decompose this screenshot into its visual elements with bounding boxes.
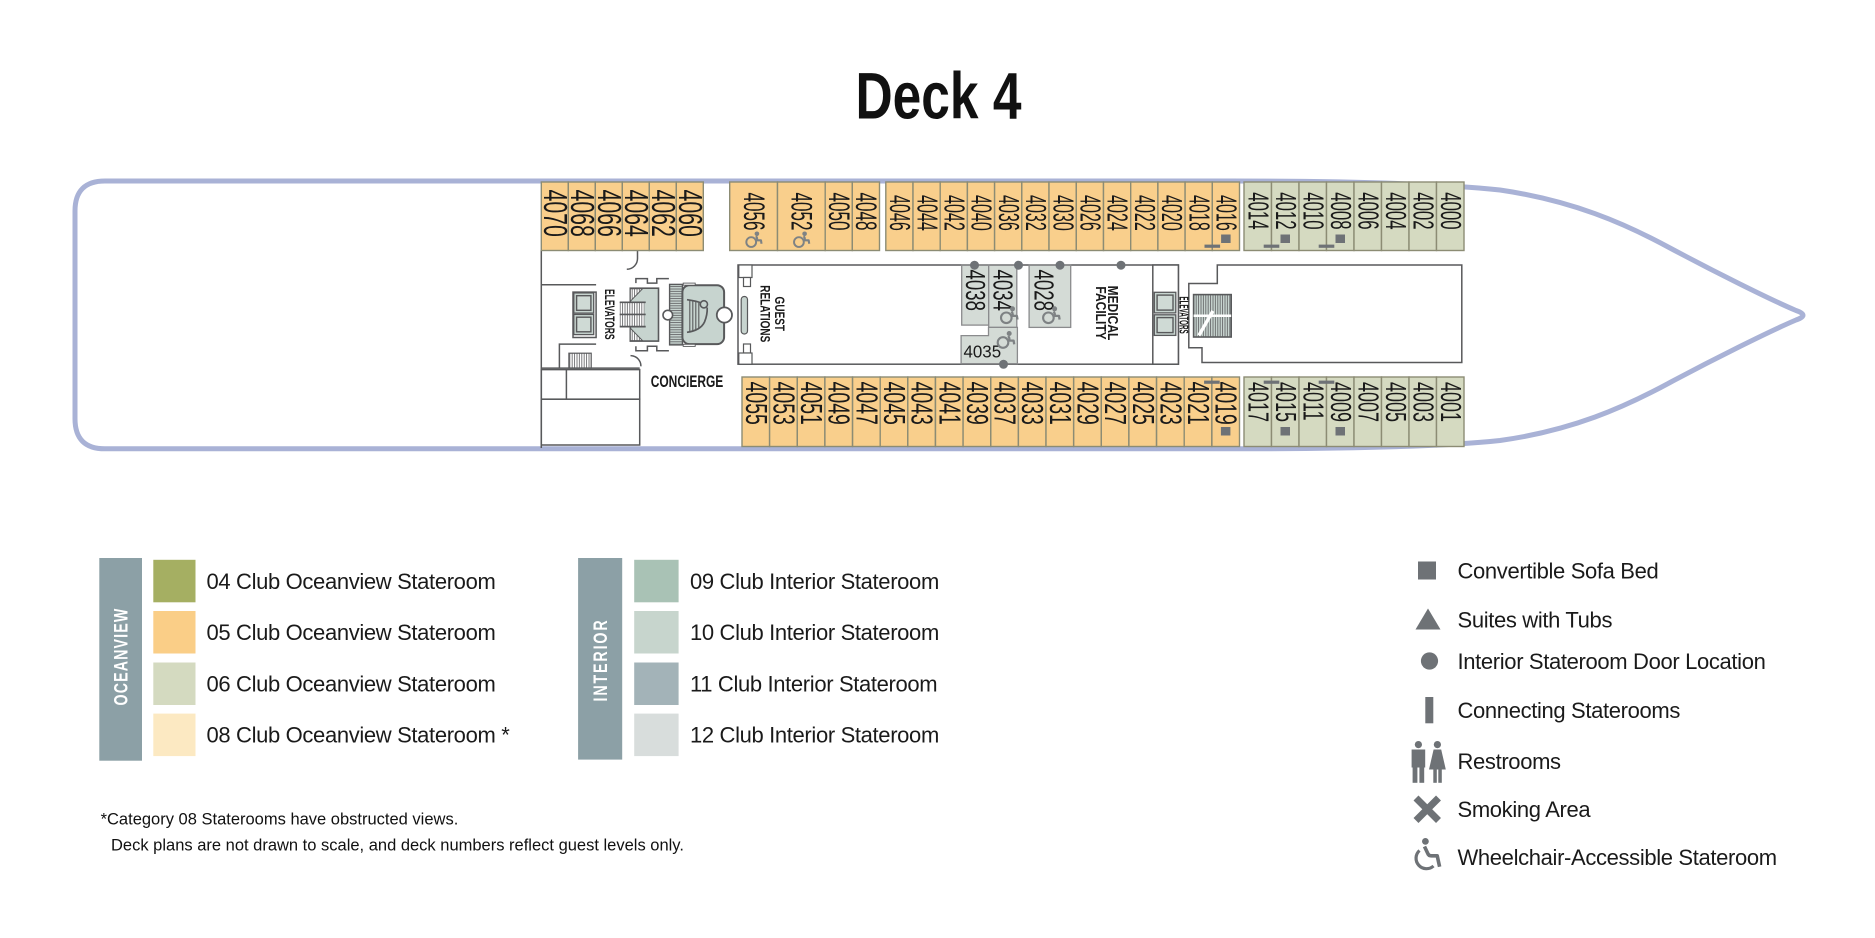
svg-text:4000: 4000 xyxy=(1433,192,1465,229)
svg-text:4020: 4020 xyxy=(1156,195,1188,231)
svg-text:12 Club Interior Stateroom: 12 Club Interior Stateroom xyxy=(690,723,939,748)
svg-text:4019: 4019 xyxy=(1209,382,1242,425)
svg-text:Restrooms: Restrooms xyxy=(1458,749,1562,774)
svg-text:4012: 4012 xyxy=(1268,192,1300,229)
svg-text:4014: 4014 xyxy=(1241,192,1273,229)
svg-text:Suites with Tubs: Suites with Tubs xyxy=(1458,607,1613,632)
svg-text:4028: 4028 xyxy=(1028,270,1059,311)
svg-text:4001: 4001 xyxy=(1434,382,1466,422)
svg-text:Deck plans are not drawn to sc: Deck plans are not drawn to scale, and d… xyxy=(111,837,684,855)
svg-text:08 Club Oceanview Stateroom *: 08 Club Oceanview Stateroom * xyxy=(207,723,511,748)
svg-text:4016: 4016 xyxy=(1210,195,1242,231)
svg-text:06 Club Oceanview Stateroom: 06 Club Oceanview Stateroom xyxy=(207,672,496,697)
svg-text:4060: 4060 xyxy=(672,190,709,237)
svg-text:CONCIERGE: CONCIERGE xyxy=(651,373,724,391)
svg-text:10 Club Interior Stateroom: 10 Club Interior Stateroom xyxy=(690,620,939,645)
svg-text:4034: 4034 xyxy=(987,270,1018,311)
svg-text:4052: 4052 xyxy=(784,193,817,231)
svg-text:4038: 4038 xyxy=(959,270,990,311)
svg-text:4035: 4035 xyxy=(963,341,1001,362)
svg-text:4056: 4056 xyxy=(736,193,769,231)
svg-text:4006: 4006 xyxy=(1351,192,1383,229)
svg-text:FACILITY: FACILITY xyxy=(1093,286,1110,339)
svg-text:*Category 08 Staterooms have o: *Category 08 Staterooms have obstructed … xyxy=(101,811,459,829)
svg-text:ELEVATORS: ELEVATORS xyxy=(601,289,616,340)
svg-text:Connecting Staterooms: Connecting Staterooms xyxy=(1458,698,1681,723)
svg-text:4002: 4002 xyxy=(1406,192,1438,229)
svg-text:OCEANVIEW: OCEANVIEW xyxy=(111,608,132,706)
svg-text:INTERIOR: INTERIOR xyxy=(590,618,611,701)
svg-text:04 Club Oceanview Stateroom: 04 Club Oceanview Stateroom xyxy=(207,569,496,594)
svg-text:4010: 4010 xyxy=(1296,192,1328,229)
svg-text:Deck 4: Deck 4 xyxy=(856,58,1022,133)
svg-text:4004: 4004 xyxy=(1378,192,1410,229)
svg-text:Smoking Area: Smoking Area xyxy=(1458,797,1592,822)
svg-text:4048: 4048 xyxy=(849,193,882,231)
svg-text:11 Club Interior Stateroom: 11 Club Interior Stateroom xyxy=(690,672,937,697)
svg-text:ELEVATORS: ELEVATORS xyxy=(1176,297,1190,334)
svg-text:4008: 4008 xyxy=(1323,192,1355,229)
svg-text:Convertible Sofa Bed: Convertible Sofa Bed xyxy=(1458,558,1659,583)
svg-text:RELATIONS: RELATIONS xyxy=(757,285,773,342)
svg-text:05 Club Oceanview Stateroom: 05 Club Oceanview Stateroom xyxy=(207,620,496,645)
svg-text:09 Club Interior Stateroom: 09 Club Interior Stateroom xyxy=(690,569,939,594)
svg-text:Wheelchair-Accessible Stateroo: Wheelchair-Accessible Stateroom xyxy=(1458,845,1777,870)
svg-text:Interior Stateroom Door Locati: Interior Stateroom Door Location xyxy=(1458,649,1766,674)
